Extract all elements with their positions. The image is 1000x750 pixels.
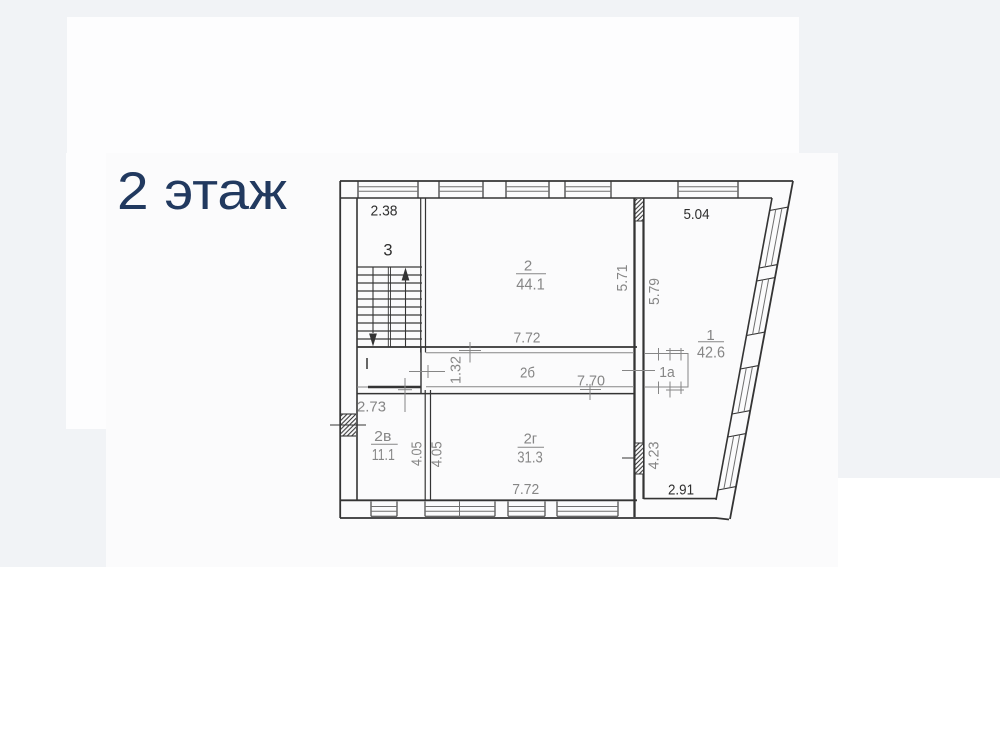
svg-text:3: 3 (383, 241, 392, 259)
svg-text:7.70: 7.70 (577, 372, 605, 389)
svg-text:42.6: 42.6 (697, 345, 725, 362)
svg-text:4.05: 4.05 (409, 441, 426, 466)
svg-text:31.3: 31.3 (517, 449, 543, 466)
svg-text:1а: 1а (659, 364, 675, 381)
svg-text:7.72: 7.72 (512, 481, 539, 498)
svg-text:11.1: 11.1 (372, 447, 395, 464)
svg-text:2б: 2б (520, 364, 535, 381)
svg-text:2.38: 2.38 (371, 202, 398, 219)
svg-text:1.32: 1.32 (447, 356, 464, 384)
svg-text:2.91: 2.91 (668, 481, 694, 498)
svg-text:2.73: 2.73 (357, 398, 386, 415)
svg-text:4.23: 4.23 (646, 442, 663, 470)
svg-text:4.05: 4.05 (428, 441, 445, 467)
svg-text:5.79: 5.79 (646, 278, 663, 305)
svg-text:2: 2 (524, 258, 532, 275)
svg-text:44.1: 44.1 (516, 276, 545, 293)
svg-text:2в: 2в (374, 428, 391, 445)
svg-text:7.72: 7.72 (514, 330, 541, 347)
svg-text:2г: 2г (524, 431, 538, 448)
svg-text:5.71: 5.71 (614, 265, 631, 292)
svg-text:5.04: 5.04 (684, 206, 710, 223)
